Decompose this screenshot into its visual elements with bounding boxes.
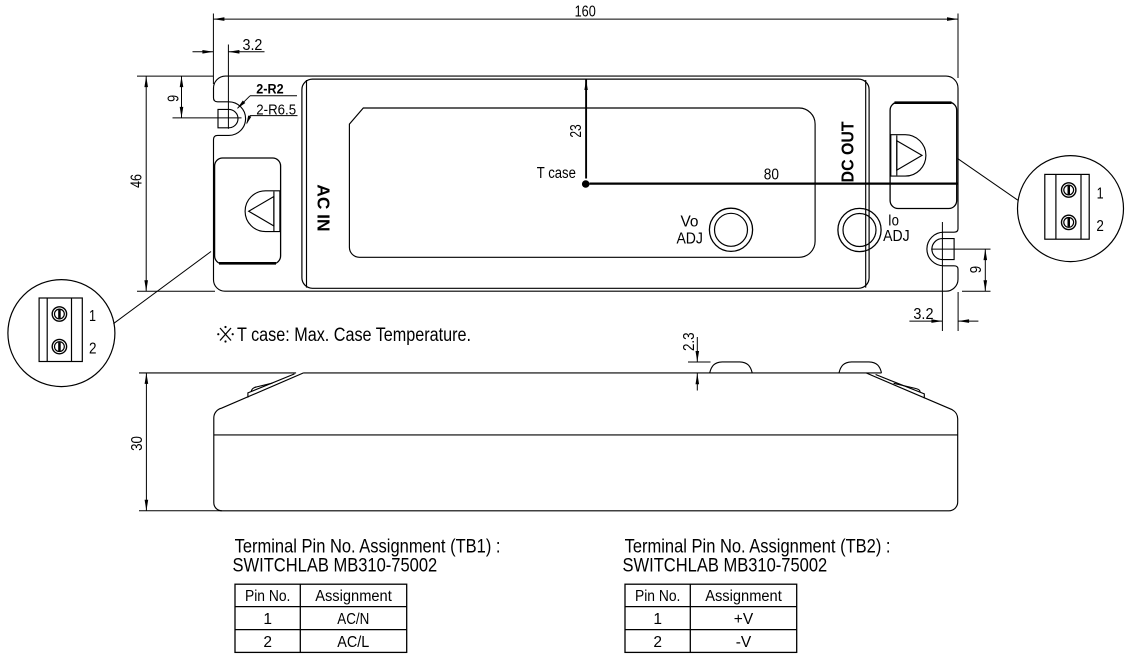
svg-text:T case: Max. Case Temperature.: T case: Max. Case Temperature. [237,325,471,346]
svg-text:Io: Io [888,212,899,229]
svg-text:Terminal Pin No. Assignment (: Terminal Pin No. Assignment (TB2) : [625,536,891,557]
svg-text:SWITCHLAB MB310-75002: SWITCHLAB MB310-75002 [623,556,828,577]
svg-text:2.3: 2.3 [681,332,698,351]
svg-text:160: 160 [575,4,596,21]
svg-text:Vo: Vo [681,213,699,230]
svg-text:Terminal Pin No. Assignment (: Terminal Pin No. Assignment (TB1) : [235,536,501,557]
svg-text:Assignment: Assignment [315,588,392,605]
svg-text:1: 1 [653,611,662,628]
svg-text:3.2: 3.2 [243,37,263,54]
svg-text:1: 1 [1097,185,1104,202]
svg-text:2: 2 [653,634,662,651]
svg-text:ADJ: ADJ [883,228,910,245]
svg-text:-V: -V [736,634,752,651]
svg-text:2-R2: 2-R2 [256,82,283,97]
svg-text:23: 23 [568,124,585,137]
svg-text:T case: T case [537,165,576,182]
svg-text:AC IN: AC IN [314,184,334,231]
svg-text:Pin No.: Pin No. [635,588,680,605]
svg-text:SWITCHLAB MB310-75002: SWITCHLAB MB310-75002 [233,556,438,577]
svg-text:ADJ: ADJ [676,231,703,248]
svg-text:+V: +V [734,611,754,628]
svg-text:9: 9 [968,266,985,273]
svg-text:80: 80 [764,167,779,184]
svg-text:DC OUT: DC OUT [838,121,858,182]
svg-text:2: 2 [1096,218,1104,235]
svg-text:Pin No.: Pin No. [245,588,290,605]
svg-text:2: 2 [89,340,97,357]
svg-text:1: 1 [89,308,96,325]
svg-text:46: 46 [128,174,145,188]
svg-text:2-R6.5: 2-R6.5 [256,102,296,118]
svg-text:AC/L: AC/L [337,634,369,651]
svg-text:Assignment: Assignment [705,588,782,605]
svg-text:2: 2 [263,634,272,651]
svg-text:3.2: 3.2 [913,306,933,323]
svg-text:1: 1 [263,611,272,628]
svg-text:AC/N: AC/N [337,611,369,628]
svg-text:30: 30 [129,436,146,451]
svg-text:9: 9 [166,95,183,102]
